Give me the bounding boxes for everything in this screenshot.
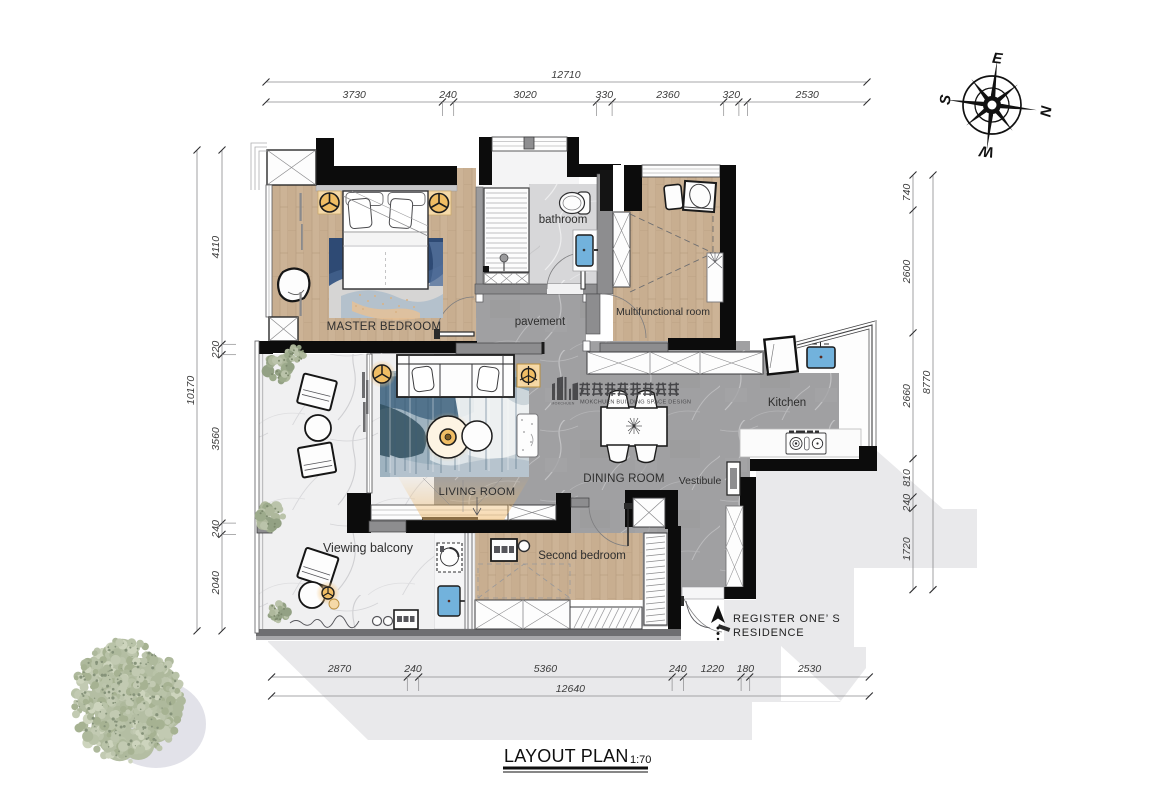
svg-text:REGISTER ONE’ S: REGISTER ONE’ S (733, 613, 841, 625)
svg-text:240: 240 (668, 663, 687, 675)
svg-text:S: S (937, 94, 955, 106)
svg-text:pavement: pavement (515, 316, 566, 328)
svg-text:220: 220 (210, 341, 222, 360)
svg-text:320: 320 (723, 89, 741, 101)
svg-text:RESIDENCE: RESIDENCE (733, 627, 804, 639)
svg-text:180: 180 (737, 663, 755, 675)
svg-text:10170: 10170 (185, 376, 197, 405)
svg-text:Kitchen: Kitchen (768, 397, 806, 409)
svg-text:2360: 2360 (655, 89, 680, 101)
svg-text:330: 330 (596, 89, 614, 101)
svg-text:3560: 3560 (210, 427, 222, 451)
svg-text:3730: 3730 (343, 89, 367, 101)
svg-text:3020: 3020 (513, 89, 537, 101)
svg-text:4110: 4110 (210, 236, 222, 259)
svg-text:bathroom: bathroom (539, 214, 588, 226)
svg-text:12710: 12710 (551, 69, 580, 81)
svg-text:740: 740 (901, 184, 913, 202)
svg-text:2600: 2600 (901, 260, 913, 285)
svg-text:MOKCHUEN: MOKCHUEN (551, 402, 574, 406)
svg-text:Multifunctional room: Multifunctional room (616, 306, 710, 318)
svg-text:LIVING ROOM: LIVING ROOM (439, 486, 516, 498)
svg-text:1220: 1220 (701, 663, 725, 675)
svg-text:240: 240 (438, 89, 457, 101)
svg-text:MASTER BEDROOM: MASTER BEDROOM (327, 321, 442, 333)
svg-text:240: 240 (210, 520, 222, 539)
svg-text:2040: 2040 (210, 571, 222, 596)
svg-text:240: 240 (901, 494, 913, 513)
svg-text:Vestibule: Vestibule (679, 475, 722, 487)
svg-text:2530: 2530 (795, 89, 820, 101)
svg-text:1:70: 1:70 (630, 754, 651, 766)
svg-text:LAYOUT PLAN: LAYOUT PLAN (504, 746, 629, 766)
svg-text:MOKCHUEN BUILDING SPACE DESIGN: MOKCHUEN BUILDING SPACE DESIGN (580, 400, 691, 406)
svg-text:Viewing balcony: Viewing balcony (323, 541, 414, 555)
svg-text:2660: 2660 (901, 384, 913, 409)
svg-text:8770: 8770 (921, 370, 933, 394)
svg-text:2870: 2870 (327, 663, 352, 675)
svg-text:12640: 12640 (556, 683, 585, 695)
svg-text:2530: 2530 (797, 663, 822, 675)
svg-text:240: 240 (403, 663, 422, 675)
svg-text:DINING ROOM: DINING ROOM (583, 473, 664, 485)
svg-text:1720: 1720 (901, 537, 913, 561)
svg-text:810: 810 (901, 469, 913, 487)
svg-text:5360: 5360 (534, 663, 558, 675)
svg-text:Second bedroom: Second bedroom (538, 550, 626, 562)
